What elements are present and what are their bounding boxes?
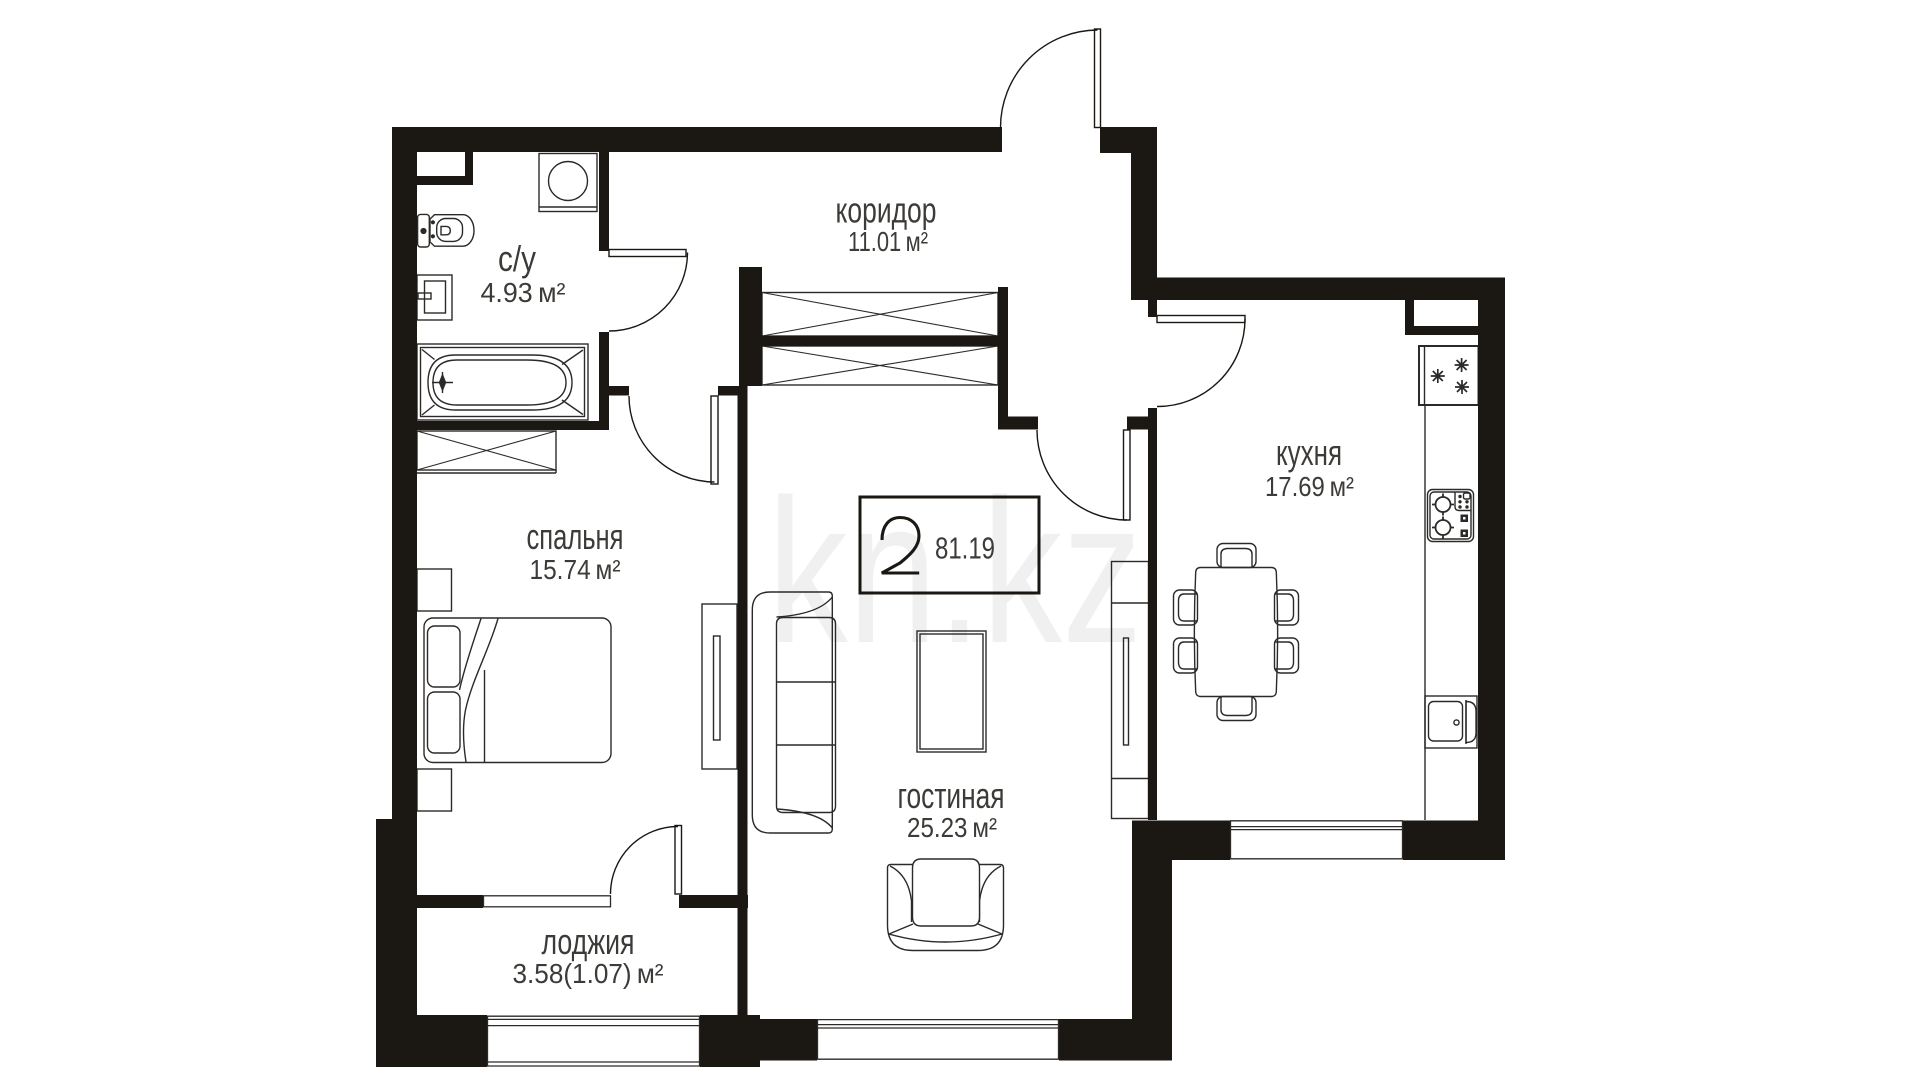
svg-text:25.23 м²: 25.23 м² xyxy=(907,812,997,843)
svg-text:4.93 м²: 4.93 м² xyxy=(481,277,566,308)
svg-text:кухня: кухня xyxy=(1276,432,1342,473)
svg-text:81.19: 81.19 xyxy=(935,531,995,566)
svg-text:17.69 м²: 17.69 м² xyxy=(1265,471,1354,502)
svg-text:11.01 м²: 11.01 м² xyxy=(848,226,928,257)
svg-text:спальня: спальня xyxy=(527,516,624,557)
svg-text:лоджия: лоджия xyxy=(542,921,635,962)
svg-text:3.58(1.07) м²: 3.58(1.07) м² xyxy=(513,958,664,989)
svg-text:kn.kz: kn.kz xyxy=(768,457,1143,686)
svg-text:15.74 м²: 15.74 м² xyxy=(530,554,621,585)
svg-text:коридор: коридор xyxy=(836,190,937,231)
svg-text:гостиная: гостиная xyxy=(898,775,1005,816)
svg-text:с/у: с/у xyxy=(498,238,536,279)
